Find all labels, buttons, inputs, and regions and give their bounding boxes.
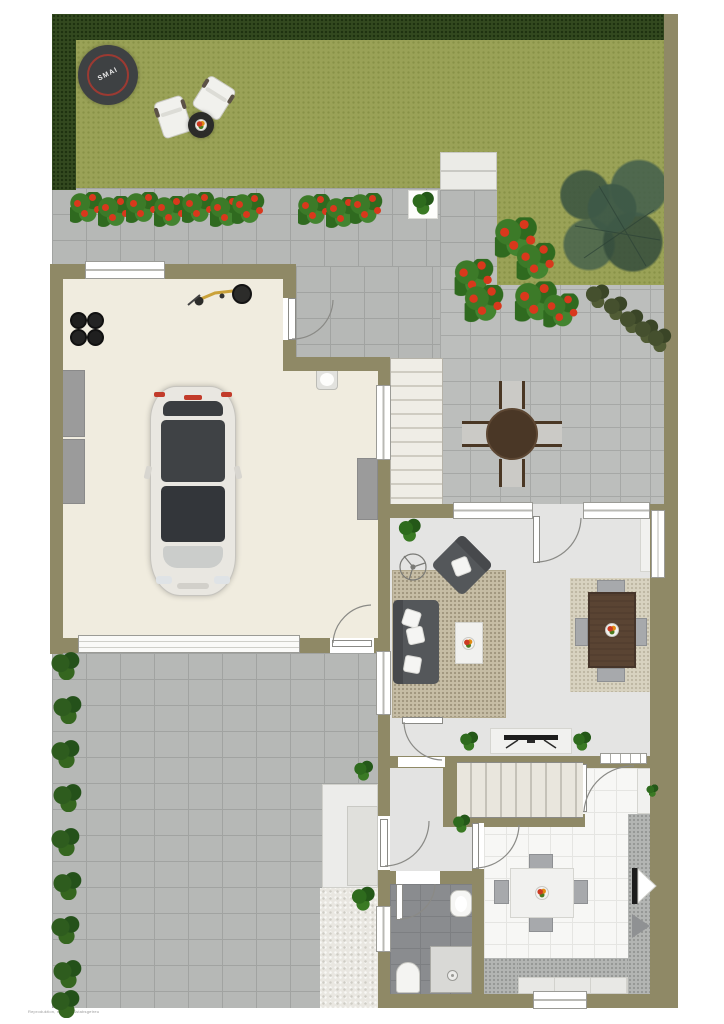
patio-door-leaf — [533, 516, 540, 563]
garden-step-lower — [440, 171, 497, 190]
exterior-stairs — [390, 358, 443, 506]
fruit-bowl — [535, 886, 549, 900]
potted-plant-icon — [645, 784, 659, 797]
vestibule-kitchen-door-leaf — [472, 823, 479, 869]
washbasin — [450, 890, 472, 917]
potted-plant-icon — [410, 191, 435, 215]
potted-plant-icon — [458, 731, 479, 751]
garage-wall-notch — [283, 357, 390, 371]
kitchen-chair — [494, 880, 509, 904]
patio-chair — [499, 381, 525, 409]
side-yard-pavers — [296, 266, 440, 358]
potted-plant-icon — [349, 886, 376, 911]
hedge-left — [52, 14, 76, 190]
kitchen-counter-right — [628, 814, 652, 994]
flower-cluster-icon — [543, 293, 580, 327]
shrub-icon — [645, 327, 672, 352]
patio-chair — [499, 459, 525, 487]
flower-cluster-icon — [350, 193, 384, 224]
hedge-top — [52, 14, 664, 40]
outdoor-storage-inner — [347, 806, 378, 886]
flower-cluster-icon — [465, 285, 506, 322]
boundary-wall-right — [664, 14, 678, 1008]
fruit-bowl — [605, 623, 619, 637]
hall-door-leaf — [402, 717, 443, 724]
floor-plan: SMAI — [0, 0, 724, 1024]
fruit-plate — [195, 119, 207, 131]
sofa — [393, 600, 439, 684]
bathroom-window — [376, 906, 391, 952]
garden-step-upper — [440, 152, 497, 171]
flower-cluster-icon — [517, 243, 558, 280]
shower — [430, 946, 472, 993]
hedge-bush-icon — [52, 784, 82, 812]
tree-icon — [560, 148, 664, 282]
garage-window-top — [85, 261, 165, 279]
living-window-top-left — [453, 502, 533, 519]
toilet — [396, 962, 420, 993]
kitchen-window-bottom — [533, 991, 587, 1009]
workbench — [357, 458, 378, 520]
front-door-leaf — [380, 819, 388, 867]
garage-side-door-leaf — [288, 298, 296, 340]
fruit-bowl — [462, 637, 475, 650]
hedge-bush-icon — [50, 990, 80, 1018]
living-window-top-right — [583, 502, 650, 519]
garage-wall-left — [50, 264, 63, 654]
patio-chair — [534, 421, 562, 447]
kitchen-chair — [529, 854, 553, 869]
storage-cabinet — [62, 370, 85, 437]
path-pavers-right — [440, 190, 497, 266]
bathroom-door-leaf — [396, 884, 403, 920]
garage-rear-door-leaf — [332, 640, 372, 647]
potted-plant-icon — [451, 814, 471, 833]
kitchen-chair — [573, 880, 588, 904]
potted-plant-icon — [396, 518, 422, 542]
hedge-bush-icon — [50, 916, 80, 944]
storage-cabinet — [62, 439, 85, 504]
tv-sideboard — [490, 728, 572, 754]
kitchen-counter-corner — [484, 958, 518, 994]
hedge-bush-icon — [52, 696, 82, 724]
potted-plant-icon — [571, 731, 592, 751]
dining-chair — [575, 618, 588, 646]
hedge-bush-icon — [52, 872, 82, 900]
patio-doorway — [533, 504, 583, 518]
tire-stack — [70, 312, 106, 348]
kitchen-counter-bottom — [518, 958, 628, 977]
hedge-bush-icon — [50, 828, 80, 856]
garage-door — [78, 635, 300, 653]
flower-cluster-icon — [232, 193, 266, 224]
potted-plant-icon — [352, 760, 374, 781]
hedge-bush-icon — [50, 740, 80, 768]
hall-doorway — [398, 757, 445, 767]
patio-table — [486, 408, 538, 460]
trampoline: SMAI — [78, 45, 138, 105]
house-wall-right — [650, 504, 664, 1008]
kitchen-chair — [529, 917, 553, 932]
hedge-bush-icon — [50, 652, 80, 680]
bathroom-doorway — [396, 871, 440, 884]
living-window-right — [651, 510, 665, 578]
dining-chair — [597, 668, 625, 682]
garage-window-east — [376, 385, 391, 460]
staircase — [457, 762, 583, 818]
car — [150, 386, 236, 596]
living-window-left — [376, 651, 391, 715]
hedge-bush-icon — [52, 960, 82, 988]
house-wall-bottom — [378, 994, 664, 1008]
kitchen-threshold — [600, 753, 647, 764]
